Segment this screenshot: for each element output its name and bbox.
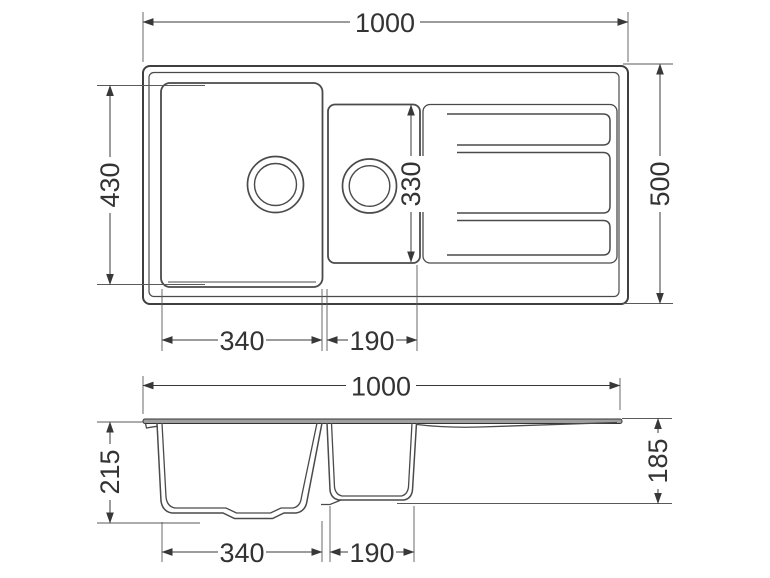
main-bowl-section-inner xyxy=(162,423,317,513)
dim-overall-width-top: 1000 xyxy=(143,8,628,62)
rim-surface xyxy=(143,419,622,424)
front-view: 1000 215 185 340 xyxy=(95,372,673,569)
dim-label-main-bowl-depth: 215 xyxy=(95,449,125,494)
dim-label-main-bowl-front-depth: 430 xyxy=(95,162,125,207)
main-bowl-section-outer xyxy=(157,423,322,519)
dim-label-half-bowl-width-front: 190 xyxy=(349,538,394,568)
half-bowl-bottom-step xyxy=(321,500,341,505)
dim-label-main-bowl-width-top: 340 xyxy=(219,326,264,356)
dim-half-bowl-depth: 185 xyxy=(397,419,673,504)
dim-label-half-bowl-depth: 185 xyxy=(643,438,673,483)
dim-label-half-bowl-width-top: 190 xyxy=(349,326,394,356)
dim-overall-depth: 500 xyxy=(623,64,675,304)
dim-main-bowl-width-front: 340 xyxy=(162,521,322,568)
top-view: 1000 430 330 500 xyxy=(95,8,675,356)
sink-dimension-drawing: 1000 430 330 500 xyxy=(0,0,770,578)
dim-label-overall-width-top: 1000 xyxy=(355,8,415,38)
top-view-sink-outline xyxy=(143,66,628,304)
half-bowl-section-inner xyxy=(332,423,413,496)
left-rim-lip xyxy=(146,424,158,429)
dim-label-overall-width-front: 1000 xyxy=(351,372,411,402)
dim-label-half-bowl-front-depth: 330 xyxy=(396,161,426,206)
drawing-canvas: 1000 430 330 500 xyxy=(0,0,770,578)
half-bowl-section-outer xyxy=(327,423,417,500)
dim-overall-width-front: 1000 xyxy=(143,372,620,415)
dim-half-bowl-width-front: 190 xyxy=(330,506,414,568)
dim-label-overall-depth: 500 xyxy=(645,161,675,206)
dim-label-main-bowl-width-front: 340 xyxy=(219,538,264,568)
